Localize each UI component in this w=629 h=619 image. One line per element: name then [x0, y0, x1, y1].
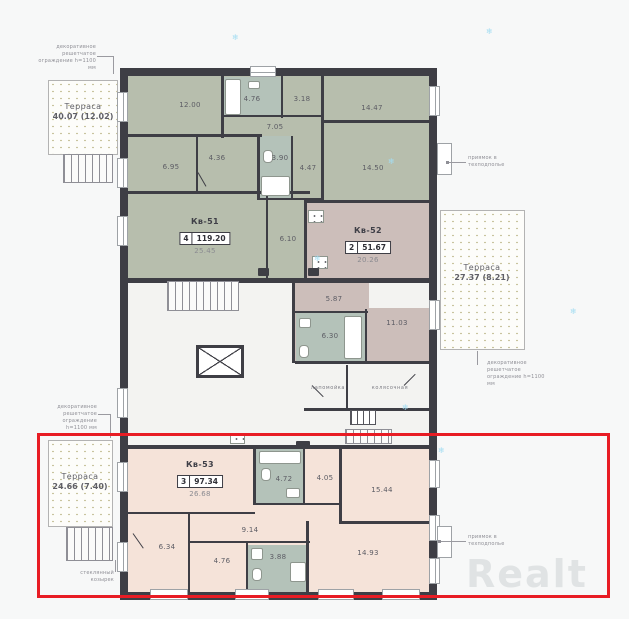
service-shaft	[350, 410, 376, 425]
kv52-room-area: 5.87	[326, 295, 343, 303]
pit-note-right: приямок в техподполье	[468, 155, 510, 169]
kv53-highlight-box	[37, 433, 610, 598]
fence-note-right: декоративное решетчатое ограждение h=110…	[487, 360, 547, 388]
fence-note-bottom-left: декоративное решетчатое ограждение h=110…	[40, 404, 97, 432]
snowflake-icon: ❄	[388, 158, 395, 166]
snowflake-icon: ❄	[314, 255, 321, 263]
vent-icon	[258, 268, 269, 276]
wall	[292, 311, 368, 313]
kv51-label: Кв-51 4 119.20 25.45	[179, 217, 230, 255]
wall	[281, 76, 283, 118]
kv52-total-area: 51.67	[358, 242, 390, 253]
terrace-area: 27.37 (8.21)	[454, 273, 509, 282]
snowflake-icon: ❄	[232, 34, 239, 42]
wall	[196, 134, 198, 194]
wall	[120, 68, 437, 76]
kv51-room-area: 3.90	[272, 154, 289, 162]
kv51-room-area: 3.18	[294, 95, 311, 103]
snowflake-icon: ❄	[402, 404, 409, 412]
terrace-area: 40.07 (12.02)	[53, 112, 114, 121]
kv52-main-room-area: 20.26	[345, 256, 391, 264]
terrace-top-left-label: Терраса 40.07 (12.02)	[53, 102, 114, 121]
kv51-name: Кв-51	[179, 217, 230, 226]
bathtub-icon	[344, 316, 362, 359]
pit-box	[437, 143, 452, 175]
stove-icon	[308, 210, 324, 223]
kv51-room-area: 4.47	[300, 164, 317, 172]
window	[117, 158, 128, 188]
kv52-rooms-count: 2	[346, 242, 358, 253]
leader-line	[449, 162, 466, 163]
elevator-shaft	[196, 345, 244, 378]
wall	[221, 115, 323, 117]
kv51-room-area: 6.95	[163, 163, 180, 171]
kv51-room-area: 6.10	[280, 235, 297, 243]
kv51-room-area: 7.05	[267, 123, 284, 131]
kv51-room-area: 12.00	[179, 101, 201, 109]
leader-line	[113, 56, 114, 74]
leader-line	[477, 351, 478, 365]
kv52-area-box: 2 51.67	[345, 241, 391, 254]
wall	[221, 76, 224, 138]
wall	[321, 76, 324, 202]
kv51-main-room-area: 25.45	[179, 247, 230, 255]
window	[250, 66, 276, 77]
window	[429, 86, 440, 116]
kv51-total-area: 119.20	[193, 233, 230, 244]
snowflake-icon: ❄	[486, 28, 493, 36]
kv51-room-area: 14.50	[362, 164, 384, 172]
kv51-room-area: 14.47	[361, 104, 383, 112]
paw-wash-label: лапомойка	[311, 385, 345, 391]
kv51-room-area: 4.36	[209, 154, 226, 162]
fence-note-top-left: декоративное решетчатое ограждение h=110…	[38, 44, 96, 72]
window	[429, 300, 440, 330]
terrace-right-label: Терраса 27.37 (8.21)	[454, 263, 509, 282]
wall	[321, 120, 429, 123]
snowflake-icon: ❄	[570, 308, 577, 316]
wall	[295, 361, 429, 364]
kv52-name: Кв-52	[345, 226, 391, 235]
window	[117, 216, 128, 246]
kv51-area-box: 4 119.20	[179, 232, 230, 245]
kv52-room-area: 11.03	[386, 319, 408, 327]
stroller-room-label: колясочная	[372, 385, 408, 391]
terrace-title: Терраса	[53, 102, 114, 111]
bathtub-icon	[261, 176, 290, 196]
kv51-rooms-count: 4	[180, 233, 192, 244]
kv51-room-area: 4.76	[244, 95, 261, 103]
terrace-title: Терраса	[454, 263, 509, 272]
kv52-label: Кв-52 2 51.67 20.26	[345, 226, 391, 264]
window	[117, 92, 128, 122]
wall	[292, 283, 295, 363]
bathtub-icon	[225, 79, 241, 115]
floor-plan: 12.00 4.76 3.18 14.47 7.05 6.95 4.36 3.9…	[0, 0, 629, 619]
sink-icon	[299, 318, 311, 328]
exterior-stairs-top-left	[63, 154, 113, 183]
toilet-icon	[299, 345, 309, 358]
vent-icon	[308, 268, 319, 276]
wall	[304, 200, 429, 203]
kv52-room-area: 6.30	[322, 332, 339, 340]
kv52-floor-kitchen	[367, 308, 429, 363]
wall	[128, 134, 262, 137]
wall	[365, 309, 367, 363]
wall	[346, 365, 348, 410]
sink-icon	[248, 81, 260, 89]
leader-line	[97, 56, 114, 57]
wall	[304, 200, 307, 280]
window	[117, 388, 128, 418]
staircase-top	[167, 281, 239, 311]
